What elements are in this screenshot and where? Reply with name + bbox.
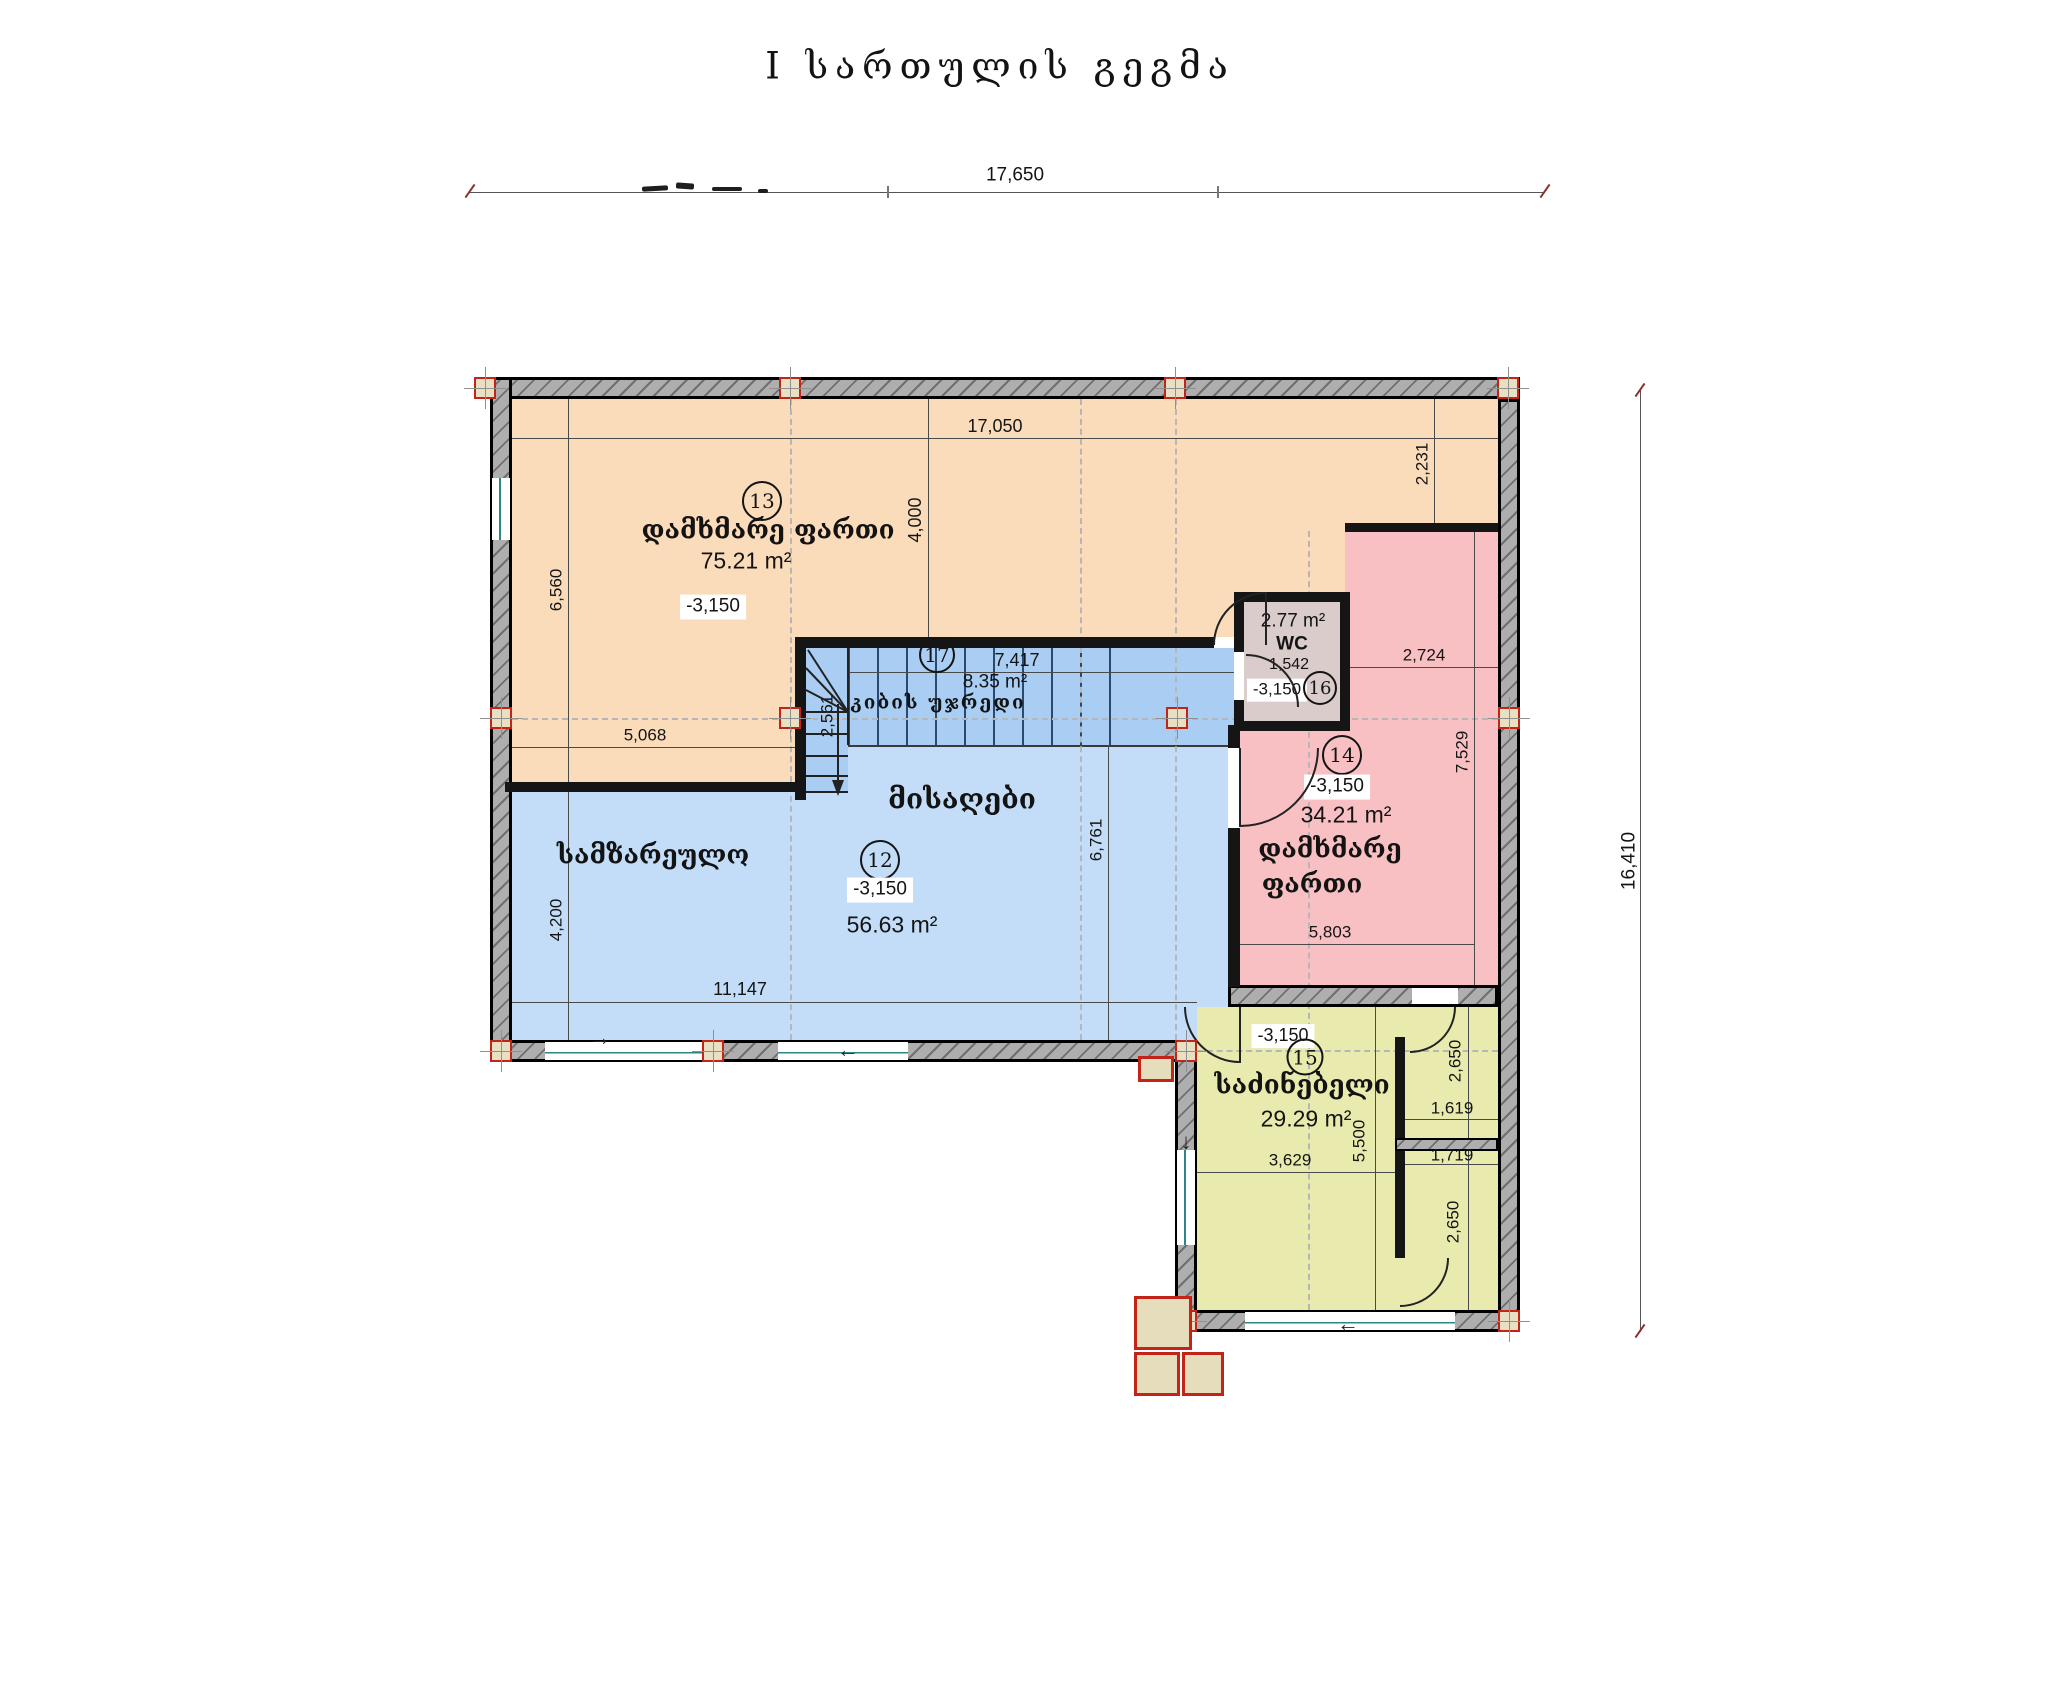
- room-number-badge: 12: [860, 840, 900, 880]
- corner-pier: [1134, 1352, 1180, 1396]
- dim-label: 7,417: [994, 651, 1039, 671]
- dim-tick: [465, 184, 476, 198]
- page-title: I სართულის გეგმა: [765, 47, 1234, 88]
- dim-tick: [887, 186, 889, 198]
- door-opening-wc: [1234, 652, 1244, 700]
- window-slide-arrow: ↓: [1181, 1129, 1192, 1155]
- dim-tick: [1217, 186, 1219, 198]
- dim-line-top: [470, 192, 1545, 193]
- door-opening: [1412, 988, 1458, 1004]
- dim-line: [848, 672, 1237, 673]
- room-name-wc: WC: [1276, 635, 1308, 656]
- dim-label: 2,231: [1414, 443, 1433, 486]
- dim-label: 1,619: [1431, 1100, 1474, 1119]
- pencil-smudge: [758, 189, 768, 193]
- room-area: 29.29 m²: [1261, 1106, 1352, 1131]
- dim-line: [1474, 531, 1475, 985]
- dim-line: [568, 399, 569, 1040]
- pencil-smudge: [642, 185, 668, 191]
- corner-pier: [1138, 1056, 1174, 1082]
- dim-label: 5,803: [1309, 924, 1352, 943]
- dim-tick: [1540, 184, 1551, 198]
- dim-label: 6,761: [1088, 819, 1107, 862]
- room-level: -3,150: [1247, 679, 1307, 702]
- room-name: მისაღები: [888, 785, 1036, 816]
- window: [545, 1040, 703, 1062]
- dim-label: 2,650: [1445, 1201, 1464, 1244]
- column-marker: [1498, 707, 1520, 729]
- room-level: -3,150: [847, 878, 913, 903]
- room-name: საძინებელი: [1214, 1072, 1389, 1101]
- column-marker: [1498, 1310, 1520, 1332]
- dim-label: 2,724: [1403, 647, 1446, 666]
- dim-label: 1,542: [1269, 656, 1309, 674]
- room-area: 34.21 m²: [1301, 802, 1392, 827]
- column-marker: [779, 377, 801, 399]
- door-opening: [1228, 748, 1240, 828]
- dim-label: 1,719: [1431, 1147, 1474, 1166]
- column-marker: [702, 1040, 724, 1062]
- dim-label: 17,050: [967, 417, 1022, 437]
- window: [490, 478, 512, 540]
- column-marker: [1175, 1040, 1197, 1062]
- room-area: 8.35 m²: [963, 673, 1027, 694]
- dim-label: 7,529: [1454, 731, 1473, 774]
- floor-plan-canvas: I სართულის გეგმა 17,650 16,410: [0, 0, 2068, 1706]
- dim-label: 6,560: [548, 569, 567, 612]
- column-marker: [490, 707, 512, 729]
- dim-line: [512, 747, 806, 748]
- column-marker: [490, 1040, 512, 1062]
- dim-line: [1434, 399, 1435, 530]
- dim-line: [512, 1002, 1197, 1003]
- wall-exterior-right: [1498, 399, 1520, 1332]
- dim-label: 4,000: [906, 497, 926, 542]
- room-area: 75.21 m²: [701, 548, 792, 573]
- room-aux-right-fill: [1345, 530, 1498, 985]
- dim-line: [1375, 1007, 1376, 1310]
- room-name-kitchen: სამზარეულო: [557, 842, 750, 871]
- window-slide-arrow: →: [589, 1025, 611, 1051]
- dim-line: [928, 399, 929, 645]
- dim-label: 5,068: [624, 727, 667, 746]
- room-name-stairs: კიბის უჯრედი: [850, 693, 1025, 714]
- window-slide-arrow: ←: [1337, 1311, 1359, 1337]
- wall-exterior-top: [490, 377, 1520, 399]
- dim-label: 5,500: [1351, 1120, 1370, 1163]
- dim-label: 11,147: [713, 980, 767, 1000]
- room-area: 2.77 m²: [1261, 612, 1325, 633]
- column-marker: [474, 377, 496, 399]
- dim-line: [1108, 745, 1109, 1040]
- column-marker: [779, 707, 801, 729]
- dim-line: [1197, 1172, 1395, 1173]
- dim-line: [1240, 944, 1474, 945]
- room-number-badge: 14: [1322, 735, 1362, 775]
- room-name: დამხმარე ფართი: [641, 517, 894, 546]
- pencil-smudge: [712, 187, 742, 191]
- dim-line: [1350, 667, 1498, 668]
- grid-line: [512, 718, 1498, 720]
- room-aux-top-fill: [512, 745, 806, 782]
- wall-kitchen-top: [505, 782, 806, 792]
- room-level: -3,150: [1304, 775, 1370, 800]
- room-number-badge: 16: [1303, 671, 1337, 705]
- column-marker: [1166, 707, 1188, 729]
- corner-pier: [1182, 1352, 1224, 1396]
- dim-label: 2,561: [819, 695, 838, 738]
- wall-aux-right-top: [1345, 523, 1498, 532]
- dim-label: 3,629: [1269, 1152, 1312, 1171]
- column-marker: [1497, 377, 1519, 399]
- dim-line: [1405, 1119, 1498, 1120]
- room-name: ფართი: [1262, 871, 1363, 900]
- dim-line: [512, 438, 1498, 439]
- corner-pier: [1134, 1296, 1192, 1350]
- dim-label: 2,650: [1447, 1040, 1466, 1083]
- wall-stair-top: [795, 637, 1240, 648]
- window: [1175, 1150, 1197, 1245]
- dim-label-total-width: 17,650: [986, 166, 1044, 187]
- room-name: დამხმარე: [1258, 836, 1401, 865]
- column-marker: [1164, 377, 1186, 399]
- pencil-smudge: [676, 182, 694, 189]
- room-level: -3,150: [680, 595, 746, 620]
- room-number-badge: 17: [919, 637, 955, 673]
- room-area: 56.63 m²: [847, 912, 938, 937]
- window-slide-arrow: ←: [837, 1037, 859, 1063]
- dim-label-total-height: 16,410: [1620, 832, 1641, 890]
- dim-label: 4,200: [548, 899, 567, 942]
